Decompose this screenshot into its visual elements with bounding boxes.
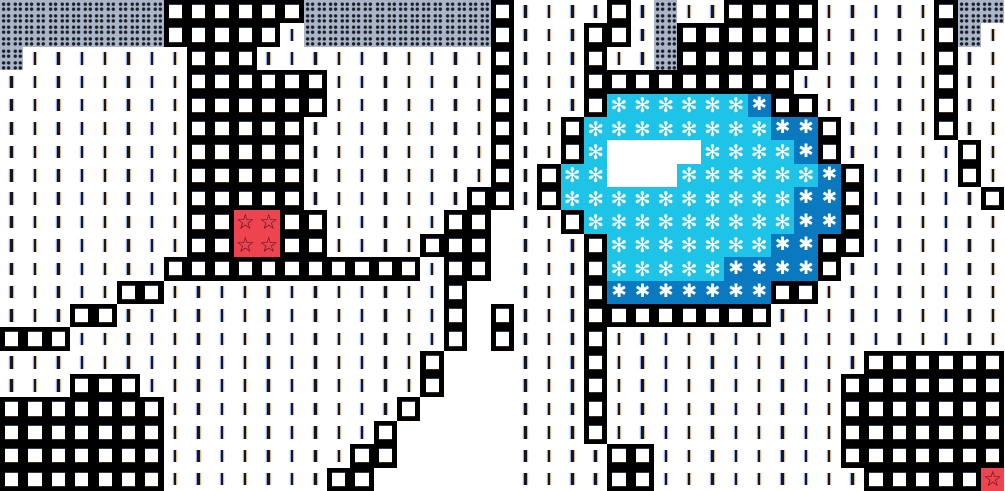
field-tile[interactable]	[164, 164, 187, 187]
field-tile[interactable]	[257, 47, 280, 70]
gravel-tile[interactable]	[374, 23, 397, 46]
field-tile[interactable]	[818, 304, 841, 327]
wall-tile[interactable]	[491, 70, 514, 93]
wall-tile[interactable]	[911, 468, 934, 491]
water-lily-tile[interactable]: ✻	[724, 187, 747, 210]
water-lily-tile[interactable]: ✻	[677, 187, 700, 210]
field-tile[interactable]	[164, 140, 187, 163]
field-tile[interactable]	[350, 397, 373, 420]
water-lily-tile[interactable]: ✻	[584, 117, 607, 140]
field-tile[interactable]	[280, 444, 303, 467]
field-tile[interactable]	[304, 327, 327, 350]
wall-tile[interactable]	[771, 94, 794, 117]
deep-water-tile[interactable]: ✱	[631, 281, 654, 304]
wall-tile[interactable]	[607, 444, 630, 467]
field-tile[interactable]	[210, 281, 233, 304]
field-tile[interactable]	[164, 234, 187, 257]
field-tile[interactable]	[888, 257, 911, 280]
water-lily-tile[interactable]: ✻	[701, 117, 724, 140]
wall-tile[interactable]	[350, 468, 373, 491]
wall-tile[interactable]	[888, 351, 911, 374]
field-tile[interactable]	[888, 281, 911, 304]
field-tile[interactable]	[374, 94, 397, 117]
wall-tile[interactable]	[210, 140, 233, 163]
floor-tile[interactable]	[374, 468, 397, 491]
field-tile[interactable]	[397, 117, 420, 140]
field-tile[interactable]	[0, 210, 23, 233]
wall-tile[interactable]	[70, 468, 93, 491]
field-tile[interactable]	[23, 94, 46, 117]
field-tile[interactable]	[210, 468, 233, 491]
wall-tile[interactable]	[140, 281, 163, 304]
field-tile[interactable]	[958, 47, 981, 70]
field-tile[interactable]	[420, 47, 443, 70]
wall-tile[interactable]	[841, 444, 864, 467]
field-tile[interactable]	[397, 351, 420, 374]
wall-tile[interactable]	[584, 234, 607, 257]
floor-tile[interactable]	[467, 421, 490, 444]
field-tile[interactable]	[864, 70, 887, 93]
field-tile[interactable]	[794, 327, 817, 350]
field-tile[interactable]	[818, 281, 841, 304]
field-tile[interactable]	[701, 397, 724, 420]
field-tile[interactable]	[981, 234, 1004, 257]
field-tile[interactable]	[70, 257, 93, 280]
floor-tile[interactable]	[397, 468, 420, 491]
water-lily-tile[interactable]: ✻	[724, 164, 747, 187]
field-tile[interactable]	[164, 187, 187, 210]
water-lily-tile[interactable]: ✻	[748, 117, 771, 140]
wall-tile[interactable]	[280, 257, 303, 280]
field-tile[interactable]	[374, 351, 397, 374]
wall-tile[interactable]	[374, 257, 397, 280]
wall-tile[interactable]	[677, 47, 700, 70]
star-marker-tile[interactable]: ☆	[234, 210, 257, 233]
wall-tile[interactable]	[234, 0, 257, 23]
field-tile[interactable]	[280, 304, 303, 327]
wall-tile[interactable]	[771, 47, 794, 70]
field-tile[interactable]	[561, 70, 584, 93]
wall-tile[interactable]	[23, 327, 46, 350]
field-tile[interactable]	[958, 327, 981, 350]
field-tile[interactable]	[47, 164, 70, 187]
field-tile[interactable]	[841, 281, 864, 304]
floor-tile[interactable]	[444, 351, 467, 374]
wall-tile[interactable]	[234, 164, 257, 187]
wall-tile[interactable]	[584, 327, 607, 350]
field-tile[interactable]	[631, 47, 654, 70]
field-tile[interactable]	[561, 257, 584, 280]
field-tile[interactable]	[561, 23, 584, 46]
field-tile[interactable]	[631, 0, 654, 23]
field-tile[interactable]	[23, 210, 46, 233]
water-lily-tile[interactable]: ✻	[771, 164, 794, 187]
field-tile[interactable]	[23, 304, 46, 327]
water-lily-tile[interactable]: ✻	[561, 187, 584, 210]
field-tile[interactable]	[561, 304, 584, 327]
wall-tile[interactable]	[818, 117, 841, 140]
wall-tile[interactable]	[140, 444, 163, 467]
field-tile[interactable]	[187, 304, 210, 327]
field-tile[interactable]	[350, 281, 373, 304]
field-tile[interactable]	[350, 94, 373, 117]
wall-tile[interactable]	[584, 304, 607, 327]
water-lily-tile[interactable]: ✻	[631, 210, 654, 233]
field-tile[interactable]	[164, 117, 187, 140]
wall-tile[interactable]	[257, 117, 280, 140]
field-tile[interactable]	[677, 444, 700, 467]
field-tile[interactable]	[537, 257, 560, 280]
water-lily-tile[interactable]: ✻	[654, 234, 677, 257]
field-tile[interactable]	[234, 374, 257, 397]
field-tile[interactable]	[304, 351, 327, 374]
field-tile[interactable]	[444, 187, 467, 210]
wall-tile[interactable]	[93, 468, 116, 491]
wall-tile[interactable]	[584, 421, 607, 444]
floor-tile[interactable]	[467, 351, 490, 374]
wall-tile[interactable]	[864, 351, 887, 374]
field-tile[interactable]	[631, 374, 654, 397]
floor-tile[interactable]	[491, 234, 514, 257]
water-lily-tile[interactable]: ✻	[631, 94, 654, 117]
field-tile[interactable]	[514, 187, 537, 210]
wall-tile[interactable]	[0, 468, 23, 491]
wall-tile[interactable]	[187, 47, 210, 70]
wall-tile[interactable]	[771, 70, 794, 93]
field-tile[interactable]	[607, 327, 630, 350]
wall-tile[interactable]	[280, 187, 303, 210]
floor-tile[interactable]	[420, 444, 443, 467]
field-tile[interactable]	[47, 94, 70, 117]
wall-tile[interactable]	[257, 0, 280, 23]
gravel-tile[interactable]	[70, 23, 93, 46]
field-tile[interactable]	[350, 327, 373, 350]
field-tile[interactable]	[117, 234, 140, 257]
wall-tile[interactable]	[491, 94, 514, 117]
field-tile[interactable]	[888, 47, 911, 70]
wall-tile[interactable]	[234, 47, 257, 70]
wall-tile[interactable]	[187, 257, 210, 280]
wall-tile[interactable]	[491, 304, 514, 327]
field-tile[interactable]	[140, 70, 163, 93]
field-tile[interactable]	[350, 117, 373, 140]
field-tile[interactable]	[561, 421, 584, 444]
wall-tile[interactable]	[748, 304, 771, 327]
field-tile[interactable]	[397, 304, 420, 327]
field-tile[interactable]	[514, 0, 537, 23]
field-tile[interactable]	[934, 257, 957, 280]
wall-tile[interactable]	[958, 351, 981, 374]
gravel-tile[interactable]	[374, 0, 397, 23]
field-tile[interactable]	[93, 164, 116, 187]
field-tile[interactable]	[70, 70, 93, 93]
floor-tile[interactable]	[444, 421, 467, 444]
field-tile[interactable]	[93, 210, 116, 233]
wall-tile[interactable]	[958, 164, 981, 187]
wall-tile[interactable]	[93, 397, 116, 420]
wall-tile[interactable]	[584, 70, 607, 93]
wall-tile[interactable]	[607, 23, 630, 46]
field-tile[interactable]	[818, 47, 841, 70]
wall-tile[interactable]	[70, 374, 93, 397]
field-tile[interactable]	[47, 374, 70, 397]
gravel-tile[interactable]	[93, 23, 116, 46]
field-tile[interactable]	[374, 117, 397, 140]
field-tile[interactable]	[841, 94, 864, 117]
field-tile[interactable]	[537, 304, 560, 327]
field-tile[interactable]	[841, 70, 864, 93]
water-lily-tile[interactable]: ✻	[724, 117, 747, 140]
wall-tile[interactable]	[491, 187, 514, 210]
wall-tile[interactable]	[0, 444, 23, 467]
field-tile[interactable]	[210, 397, 233, 420]
field-tile[interactable]	[23, 117, 46, 140]
field-tile[interactable]	[911, 164, 934, 187]
field-tile[interactable]	[397, 234, 420, 257]
gravel-tile[interactable]	[420, 0, 443, 23]
gravel-tile[interactable]	[327, 23, 350, 46]
gravel-tile[interactable]	[958, 0, 981, 23]
field-tile[interactable]	[514, 164, 537, 187]
field-tile[interactable]	[374, 47, 397, 70]
field-tile[interactable]	[561, 468, 584, 491]
field-tile[interactable]	[724, 468, 747, 491]
gravel-tile[interactable]	[397, 0, 420, 23]
field-tile[interactable]	[327, 140, 350, 163]
field-tile[interactable]	[187, 468, 210, 491]
field-tile[interactable]	[164, 397, 187, 420]
field-tile[interactable]	[794, 421, 817, 444]
field-tile[interactable]	[140, 327, 163, 350]
field-tile[interactable]	[257, 281, 280, 304]
field-tile[interactable]	[981, 140, 1004, 163]
floor-tile[interactable]	[444, 444, 467, 467]
floor-tile[interactable]	[491, 281, 514, 304]
wall-tile[interactable]	[280, 234, 303, 257]
wall-tile[interactable]	[724, 47, 747, 70]
wall-tile[interactable]	[257, 187, 280, 210]
field-tile[interactable]	[724, 374, 747, 397]
field-tile[interactable]	[514, 140, 537, 163]
field-tile[interactable]	[864, 187, 887, 210]
field-tile[interactable]	[701, 421, 724, 444]
field-tile[interactable]	[748, 421, 771, 444]
floor-tile[interactable]	[491, 468, 514, 491]
field-tile[interactable]	[327, 117, 350, 140]
field-tile[interactable]	[93, 187, 116, 210]
field-tile[interactable]	[841, 327, 864, 350]
field-tile[interactable]	[724, 397, 747, 420]
water-lily-tile[interactable]: ✻	[724, 234, 747, 257]
gravel-tile[interactable]	[23, 0, 46, 23]
water-lily-tile[interactable]: ✻	[748, 187, 771, 210]
wall-tile[interactable]	[257, 257, 280, 280]
wall-tile[interactable]	[350, 257, 373, 280]
field-tile[interactable]	[701, 327, 724, 350]
field-tile[interactable]	[23, 47, 46, 70]
wall-tile[interactable]	[911, 397, 934, 420]
wall-tile[interactable]	[584, 94, 607, 117]
field-tile[interactable]	[187, 351, 210, 374]
field-tile[interactable]	[561, 351, 584, 374]
field-tile[interactable]	[117, 164, 140, 187]
field-tile[interactable]	[187, 444, 210, 467]
wall-tile[interactable]	[280, 0, 303, 23]
field-tile[interactable]	[0, 304, 23, 327]
wall-tile[interactable]	[420, 234, 443, 257]
wall-tile[interactable]	[47, 397, 70, 420]
field-tile[interactable]	[234, 397, 257, 420]
wall-tile[interactable]	[934, 351, 957, 374]
field-tile[interactable]	[841, 304, 864, 327]
water-lily-tile[interactable]: ✻	[677, 94, 700, 117]
field-tile[interactable]	[187, 421, 210, 444]
wall-tile[interactable]	[0, 327, 23, 350]
field-tile[interactable]	[958, 210, 981, 233]
field-tile[interactable]	[327, 281, 350, 304]
wall-tile[interactable]	[117, 397, 140, 420]
field-tile[interactable]	[537, 351, 560, 374]
wall-tile[interactable]	[934, 444, 957, 467]
water-lily-tile[interactable]: ✻	[654, 210, 677, 233]
field-tile[interactable]	[631, 351, 654, 374]
field-tile[interactable]	[467, 117, 490, 140]
field-tile[interactable]	[23, 187, 46, 210]
wall-tile[interactable]	[420, 351, 443, 374]
field-tile[interactable]	[420, 164, 443, 187]
water-lily-tile[interactable]: ✻	[794, 164, 817, 187]
deep-water-tile[interactable]: ✱	[794, 210, 817, 233]
field-tile[interactable]	[771, 304, 794, 327]
water-lily-tile[interactable]: ✻	[724, 210, 747, 233]
field-tile[interactable]	[864, 164, 887, 187]
field-tile[interactable]	[164, 47, 187, 70]
gravel-tile[interactable]	[117, 0, 140, 23]
field-tile[interactable]	[23, 351, 46, 374]
gravel-tile[interactable]	[140, 0, 163, 23]
wall-tile[interactable]	[93, 304, 116, 327]
wall-tile[interactable]	[584, 281, 607, 304]
field-tile[interactable]	[47, 140, 70, 163]
wall-tile[interactable]	[0, 397, 23, 420]
wall-tile[interactable]	[958, 397, 981, 420]
water-lily-tile[interactable]: ✻	[607, 117, 630, 140]
field-tile[interactable]	[818, 327, 841, 350]
wall-tile[interactable]	[47, 468, 70, 491]
wall-tile[interactable]	[70, 397, 93, 420]
field-tile[interactable]	[397, 327, 420, 350]
field-tile[interactable]	[397, 94, 420, 117]
field-tile[interactable]	[23, 70, 46, 93]
field-tile[interactable]	[864, 47, 887, 70]
field-tile[interactable]	[888, 23, 911, 46]
water-lily-tile[interactable]: ✻	[701, 257, 724, 280]
water-lily-tile[interactable]: ✻	[701, 187, 724, 210]
wall-tile[interactable]	[210, 257, 233, 280]
wall-tile[interactable]	[93, 374, 116, 397]
field-tile[interactable]	[0, 70, 23, 93]
field-tile[interactable]	[304, 140, 327, 163]
wall-tile[interactable]	[864, 421, 887, 444]
field-tile[interactable]	[514, 210, 537, 233]
wall-tile[interactable]	[934, 117, 957, 140]
wall-tile[interactable]	[374, 444, 397, 467]
field-tile[interactable]	[958, 70, 981, 93]
field-tile[interactable]	[654, 421, 677, 444]
field-tile[interactable]	[654, 327, 677, 350]
wall-tile[interactable]	[210, 70, 233, 93]
field-tile[interactable]	[981, 47, 1004, 70]
field-tile[interactable]	[70, 47, 93, 70]
field-tile[interactable]	[304, 468, 327, 491]
field-tile[interactable]	[911, 281, 934, 304]
wall-tile[interactable]	[467, 210, 490, 233]
field-tile[interactable]	[537, 70, 560, 93]
deep-water-tile[interactable]: ✱	[794, 234, 817, 257]
field-tile[interactable]	[514, 117, 537, 140]
wall-tile[interactable]	[584, 351, 607, 374]
star-marker-tile[interactable]: ☆	[981, 468, 1004, 491]
field-tile[interactable]	[724, 327, 747, 350]
wall-tile[interactable]	[794, 0, 817, 23]
water-lily-tile[interactable]: ✻	[654, 257, 677, 280]
wall-tile[interactable]	[864, 397, 887, 420]
field-tile[interactable]	[280, 397, 303, 420]
water-lily-tile[interactable]: ✻	[584, 187, 607, 210]
field-tile[interactable]	[374, 397, 397, 420]
wall-tile[interactable]	[257, 164, 280, 187]
field-tile[interactable]	[444, 47, 467, 70]
field-tile[interactable]	[420, 117, 443, 140]
water-lily-tile[interactable]: ✻	[584, 210, 607, 233]
field-tile[interactable]	[397, 281, 420, 304]
floor-tile[interactable]	[491, 374, 514, 397]
field-tile[interactable]	[818, 397, 841, 420]
wall-tile[interactable]	[981, 187, 1004, 210]
field-tile[interactable]	[958, 281, 981, 304]
wall-tile[interactable]	[491, 0, 514, 23]
field-tile[interactable]	[70, 327, 93, 350]
wall-tile[interactable]	[117, 374, 140, 397]
field-tile[interactable]	[117, 187, 140, 210]
wall-tile[interactable]	[491, 117, 514, 140]
gravel-tile[interactable]	[981, 0, 1004, 23]
field-tile[interactable]	[654, 374, 677, 397]
wall-tile[interactable]	[140, 468, 163, 491]
wall-tile[interactable]	[280, 210, 303, 233]
wall-tile[interactable]	[444, 257, 467, 280]
field-tile[interactable]	[724, 444, 747, 467]
field-tile[interactable]	[771, 327, 794, 350]
field-tile[interactable]	[117, 140, 140, 163]
wall-tile[interactable]	[467, 257, 490, 280]
wall-tile[interactable]	[888, 374, 911, 397]
field-tile[interactable]	[374, 234, 397, 257]
field-tile[interactable]	[70, 94, 93, 117]
wall-tile[interactable]	[864, 374, 887, 397]
wall-tile[interactable]	[374, 421, 397, 444]
gravel-tile[interactable]	[350, 23, 373, 46]
field-tile[interactable]	[164, 70, 187, 93]
field-tile[interactable]	[397, 187, 420, 210]
wall-tile[interactable]	[771, 23, 794, 46]
gravel-tile[interactable]	[654, 47, 677, 70]
wall-tile[interactable]	[934, 0, 957, 23]
wall-tile[interactable]	[47, 327, 70, 350]
field-tile[interactable]	[537, 47, 560, 70]
field-tile[interactable]	[304, 117, 327, 140]
field-tile[interactable]	[467, 164, 490, 187]
